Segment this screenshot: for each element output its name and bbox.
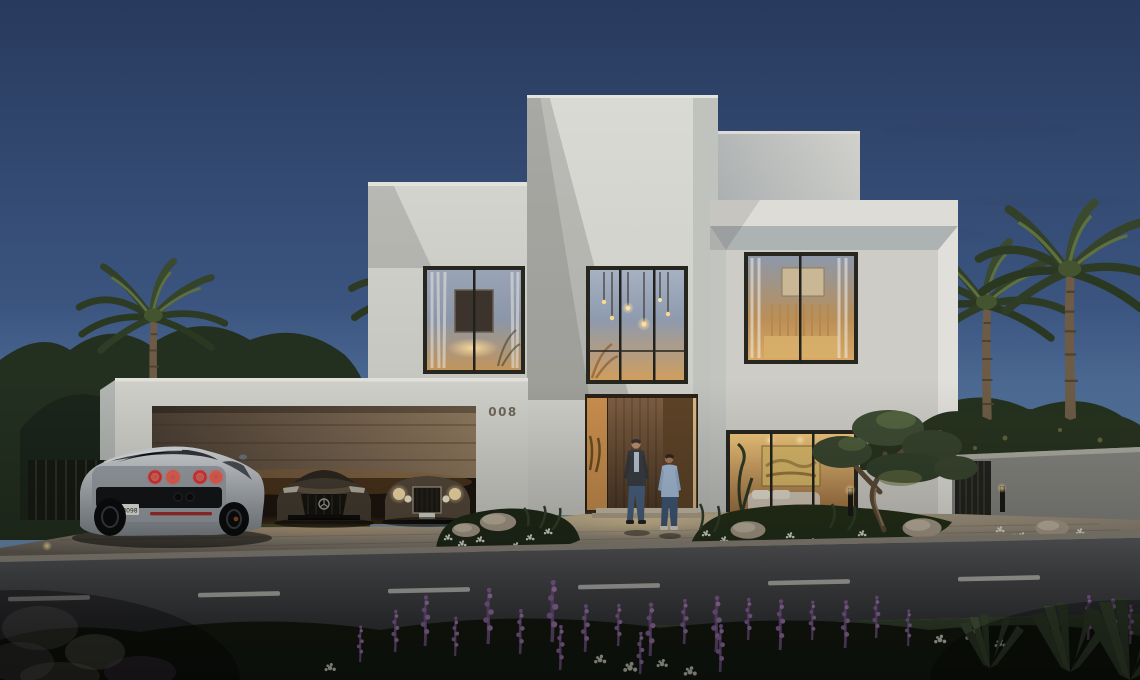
left-upper-window	[423, 266, 525, 374]
tower-glazing	[586, 266, 688, 384]
villa-dusk-rendering: 008	[0, 0, 1140, 680]
scene-image: 008	[0, 0, 1140, 680]
vignette	[0, 380, 1140, 680]
right-upper-window	[744, 252, 858, 364]
bedroom-picture	[782, 268, 824, 296]
